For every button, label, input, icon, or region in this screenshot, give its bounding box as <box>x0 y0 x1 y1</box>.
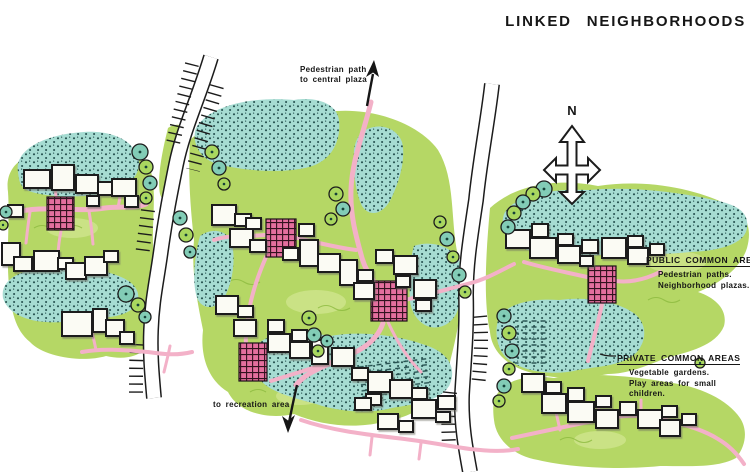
legend-public: PUBLIC COMMON AREA Pedestrian paths. Nei… <box>646 250 750 291</box>
legend-public-items: Pedestrian paths. Neighborhood plazas. <box>658 270 750 291</box>
legend-private-item: Play areas for small <box>629 379 740 390</box>
legend-private: PRIVATE COMMON AREAS Vegetable gardens. … <box>617 348 740 400</box>
legend-public-item: Pedestrian paths. <box>658 270 750 281</box>
pedestrian-path-label: Pedestrian path to central plaza <box>300 65 367 85</box>
legend-private-item: children. <box>629 389 740 400</box>
north-label: N <box>560 103 584 118</box>
legend-private-items: Vegetable gardens. Play areas for small … <box>629 368 740 400</box>
site-plan: LINKED NEIGHBORHOODS Pedestrian path to … <box>0 0 750 472</box>
pedestrian-path-label-line1: Pedestrian path <box>300 65 367 75</box>
recreation-label: to recreation area <box>213 400 290 410</box>
page-title: LINKED NEIGHBORHOODS <box>505 13 746 30</box>
legend-private-heading: PRIVATE COMMON AREAS <box>617 353 740 365</box>
legend-private-item: Vegetable gardens. <box>629 368 740 379</box>
site-plan-drawing <box>0 0 750 472</box>
legend-public-heading: PUBLIC COMMON AREA <box>646 255 750 267</box>
legend-public-item: Neighborhood plazas. <box>658 281 750 292</box>
pedestrian-path-label-line2: to central plaza <box>300 75 367 85</box>
central-plaza-arrow-icon <box>366 60 379 106</box>
